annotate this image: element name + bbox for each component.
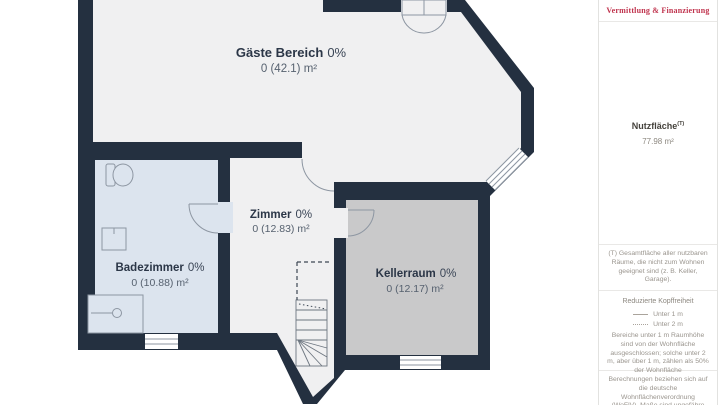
kopffreiheit-note: Bereiche unter 1 m Raumhöhe sind von der…: [607, 332, 709, 376]
page: Gäste Bereich0% 0 (42.1) m² Zimmer0% 0 (…: [0, 0, 720, 405]
window-badezimmer: [145, 334, 178, 349]
info-sidebar: Vermittlung & Finanzierung Nutzfläche(T)…: [598, 0, 718, 405]
sink-icon: [102, 228, 126, 250]
room-area-kellerraum: 0 (12.17) m²: [386, 283, 444, 295]
floor-plan: Gäste Bereich0% 0 (42.1) m² Zimmer0% 0 (…: [0, 0, 600, 405]
room-label-kellerraum: Kellerraum0%: [376, 268, 457, 280]
kopffreiheit-title: Reduzierte Kopffreiheit: [622, 298, 693, 305]
room-label-zimmer: Zimmer0%: [250, 209, 312, 221]
legend-under-2m: Unter 2 m: [633, 321, 683, 328]
dotted-line-icon: [633, 324, 648, 325]
room-label-badezimmer: Badezimmer0%: [115, 262, 204, 274]
nutzflaeche-footnote-marker: (T): [677, 121, 684, 127]
room-zimmer-floor: [230, 158, 334, 397]
brand-tagline: Vermittlung & Finanzierung: [606, 6, 709, 15]
window-kellerraum: [400, 356, 441, 369]
footnote-text: (T) Gesamtfläche aller nutzbaren Räume, …: [608, 250, 708, 285]
room-area-badezimmer: 0 (10.88) m²: [131, 277, 189, 289]
room-area-zimmer: 0 (12.83) m²: [252, 223, 310, 235]
nutzflaeche-section: Nutzfläche(T) 77.98 m²: [599, 22, 717, 245]
room-area-gaeste: 0 (42.1) m²: [261, 63, 317, 75]
footnote-section: (T) Gesamtfläche aller nutzbaren Räume, …: [599, 245, 717, 291]
nutzflaeche-value: 77.98 m²: [642, 137, 674, 146]
brand-section: Vermittlung & Finanzierung: [599, 0, 717, 22]
calc-note-section: Berechnungen beziehen sich auf die deuts…: [599, 371, 717, 405]
shower-icon: [88, 295, 143, 333]
legend-under-1m: Unter 1 m: [633, 311, 683, 318]
solid-line-icon: [633, 314, 648, 315]
kopffreiheit-section: Reduzierte Kopffreiheit Unter 1 m Unter …: [599, 291, 717, 371]
nutzflaeche-label: Nutzfläche(T): [632, 121, 685, 131]
room-label-gaeste: Gäste Bereich0%: [236, 45, 347, 60]
toilet-icon: [106, 164, 133, 186]
calc-note: Berechnungen beziehen sich auf die deuts…: [608, 376, 708, 405]
